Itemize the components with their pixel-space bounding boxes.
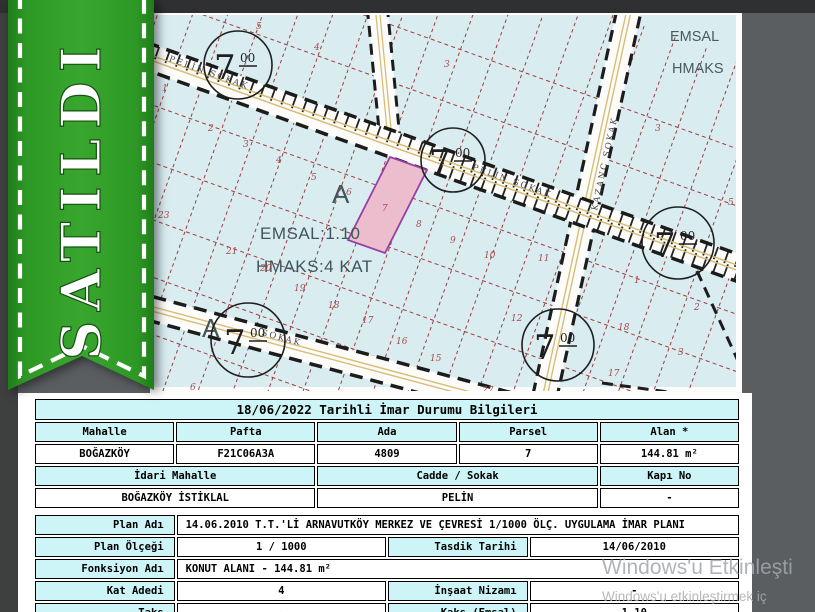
parcel-number: 6	[346, 188, 352, 198]
parcel-number: 3	[655, 124, 661, 134]
header-pafta: Pafta	[176, 422, 315, 442]
sold-ribbon: SATILDI	[4, 0, 160, 404]
value-alan: 144.81 m²	[600, 444, 739, 464]
header-mahalle: Mahalle	[35, 422, 174, 442]
parcel-number: 9	[450, 236, 456, 246]
parcel-number: 18	[618, 323, 630, 333]
value-idari-mahalle: BOĞAZKÖY İSTİKLAL	[35, 488, 315, 508]
road-width-decimals: 00	[240, 51, 255, 65]
hmaks-right-label: HMAKS	[672, 61, 724, 77]
parcel-number: 2	[693, 303, 700, 313]
parcel-number: 3	[444, 60, 450, 70]
parcel-number: 3	[678, 348, 684, 358]
emsal-annotation: EMSAL:1.10	[260, 224, 360, 243]
imar-info-table: 18/06/2022 Tarihli İmar Durumu Bilgileri…	[33, 397, 741, 510]
parcel-number: 5	[728, 198, 734, 208]
parcel-number: 19	[294, 284, 306, 294]
windows-activation-watermark-line1: Windows'u Etkinleşti	[602, 556, 793, 580]
parcel-number: 1	[634, 276, 640, 286]
value-ada: 4809	[317, 444, 456, 464]
header-kapi-no: Kapı No	[600, 466, 739, 486]
value-mahalle: BOĞAZKÖY	[35, 444, 174, 464]
label-fonksiyon-adi: Fonksiyon Adı	[35, 559, 175, 579]
table-header-row: Mahalle Pafta Ada Parsel Alan *	[35, 422, 739, 442]
table-value-row: BOĞAZKÖY F21C06A3A 4809 7 144.81 m²	[35, 444, 739, 464]
parcel-number: 5	[311, 173, 317, 183]
value-kapi-no: -	[600, 488, 739, 508]
taks-row: Taks - Kaks (Emsal) 1.10	[35, 603, 739, 612]
parcel-number: 5	[256, 22, 262, 32]
emsal-right-label: EMSAL	[670, 29, 719, 45]
zoning-map-page: SOKAK	[150, 13, 742, 395]
label-taks: Taks	[35, 603, 175, 612]
road-width-value: 7	[214, 48, 236, 88]
label-plan-olcegi: Plan Ölçeği	[35, 537, 175, 557]
highlighted-parcel-number: 7	[382, 204, 388, 214]
header-ada: Ada	[317, 422, 456, 442]
value-pafta: F21C06A3A	[176, 444, 315, 464]
value-tasdik-tarihi: 14/06/2010	[530, 537, 739, 557]
parcel-number: 11	[538, 254, 549, 264]
hmaks-annotation: HMAKS:4 KAT	[256, 257, 373, 276]
value-plan-olcegi: 1 / 1000	[177, 537, 386, 557]
label-kat-adedi: Kat Adedi	[35, 581, 175, 601]
value-kat-adedi: 4	[177, 581, 386, 601]
label-tasdik-tarihi: Tasdik Tarihi	[388, 537, 528, 557]
parcel-number: 16	[396, 337, 408, 347]
parcel-number: 10	[484, 251, 496, 261]
parcel-number: 2	[207, 124, 214, 134]
plan-olcegi-row: Plan Ölçeği 1 / 1000 Tasdik Tarihi 14/06…	[35, 537, 739, 557]
header-idari-mahalle: İdari Mahalle	[35, 466, 315, 486]
label-plan-adi: Plan Adı	[35, 515, 175, 535]
road-width-value: 7	[429, 143, 451, 183]
windows-activation-watermark-line2: Windows'u etkinleştirmek iç	[602, 589, 767, 604]
screenshot-stage: SOKAK	[0, 0, 815, 612]
parcel-number: 18	[328, 301, 340, 311]
label-insaat-nizami: İnşaat Nizamı	[388, 581, 528, 601]
label-kaks: Kaks (Emsal)	[388, 603, 528, 612]
header-alan: Alan *	[600, 422, 739, 442]
plan-adi-row: Plan Adı 14.06.2010 T.T.'Lİ ARNAVUTKÖY M…	[35, 515, 739, 535]
value-kaks: 1.10	[530, 603, 739, 612]
road-width-value: 7	[654, 226, 676, 266]
parcel-number: 4	[275, 156, 282, 166]
road-width-decimals: 00	[680, 229, 695, 243]
value-plan-adi: 14.06.2010 T.T.'Lİ ARNAVUTKÖY MERKEZ VE …	[177, 515, 739, 535]
road-width-decimals: 00	[560, 331, 575, 345]
parcel-number: 1	[162, 84, 168, 94]
parcel-number: 17	[608, 369, 620, 379]
header-cadde-sokak: Cadde / Sokak	[317, 466, 597, 486]
parcel-number: 27	[481, 386, 494, 391]
table-value-row-2: BOĞAZKÖY İSTİKLAL PELİN -	[35, 488, 739, 508]
parcel-number: 21	[225, 247, 237, 257]
parcel-number: 4	[313, 43, 320, 53]
parcel-number: 12	[511, 314, 523, 324]
parcel-number: 8	[416, 220, 422, 230]
header-parsel: Parsel	[459, 422, 598, 442]
parcel-number: 6	[190, 383, 196, 391]
ribbon-label: SATILDI	[49, 37, 113, 360]
value-taks: -	[177, 603, 386, 612]
value-parsel: 7	[459, 444, 598, 464]
table-header-row-2: İdari Mahalle Cadde / Sokak Kapı No	[35, 466, 739, 486]
value-cadde-sokak: PELİN	[317, 488, 597, 508]
parcel-number: 15	[430, 354, 442, 364]
road-width-decimals: 00	[250, 326, 265, 340]
zoning-map: SOKAK	[150, 15, 736, 391]
parcel-number: 17	[362, 316, 374, 326]
road-width-value: 7	[224, 323, 246, 363]
parcel-number: 20	[259, 264, 272, 274]
road-width-value: 7	[534, 328, 556, 368]
road-width-decimals: 00	[455, 146, 470, 160]
parcel-number: 3	[243, 140, 249, 150]
